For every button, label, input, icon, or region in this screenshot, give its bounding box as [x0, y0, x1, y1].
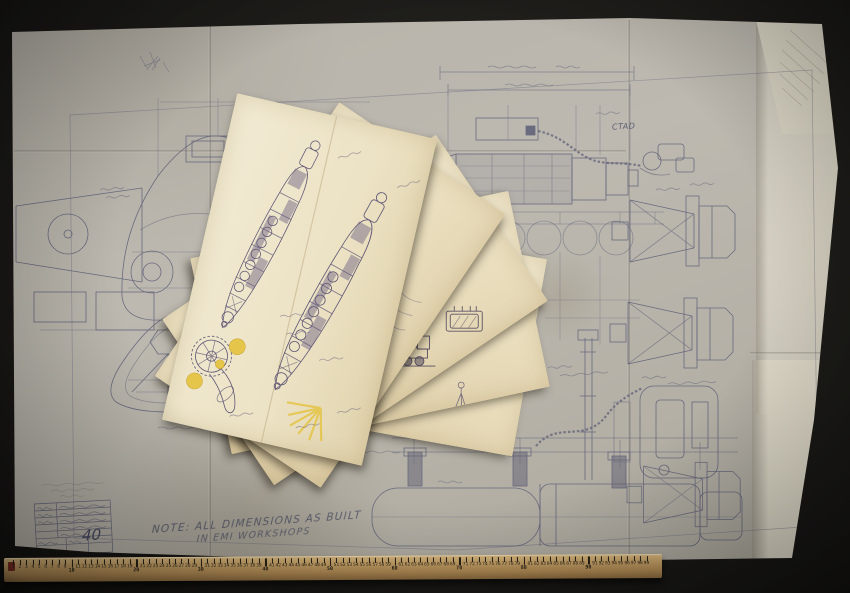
- crate-frame-sketch: [446, 306, 482, 331]
- pencil-scribble: [140, 52, 169, 72]
- ctad-annotation: CTAD: [612, 121, 636, 131]
- left-cone-drawing: [16, 188, 160, 330]
- tail-assembly-drawings: [610, 182, 735, 385]
- drawing-number: 40: [82, 525, 102, 544]
- corner-hatch-marks: [780, 30, 828, 106]
- yellow-ray-marks: [280, 400, 329, 443]
- company-stamp-squiggles: [41, 481, 104, 498]
- photograph-scene: CTAD 40 NOTE: ALL DIMENSIONS AS BUILT IN…: [0, 0, 850, 593]
- title-block: [33, 481, 113, 556]
- yellow-highlight-dots: [185, 329, 247, 398]
- wooden-ruler: 1234567891011121314151617181920212223242…: [4, 554, 662, 582]
- ruler-ticks: 1234567891011121314151617181920212223242…: [7, 554, 659, 582]
- torpedo-cutaway-sketch-1: [212, 136, 329, 333]
